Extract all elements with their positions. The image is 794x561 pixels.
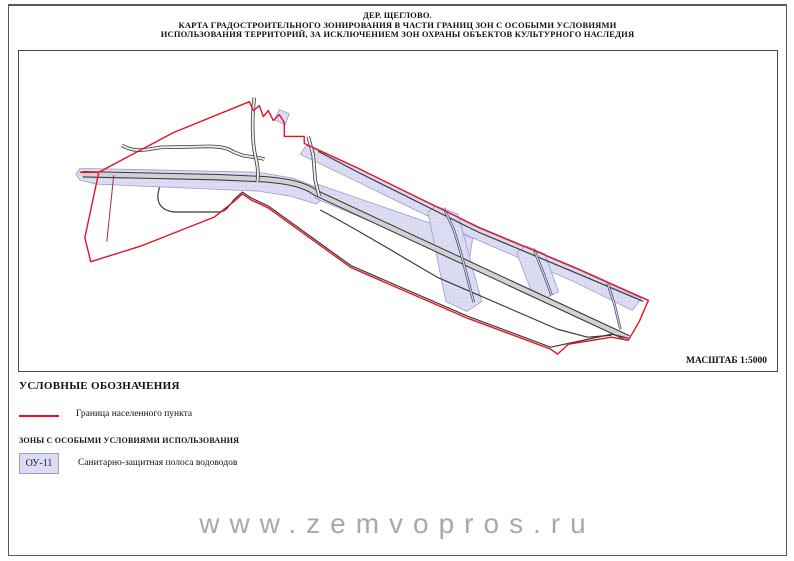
zone-code-swatch: ОУ-11 [19,453,59,474]
legend: УСЛОВНЫЕ ОБОЗНАЧЕНИЯ Граница населенного… [19,372,779,477]
boundary-line-swatch [19,415,59,417]
boundary-item-label: Граница населенного пункта [76,409,192,419]
zone-item-label: Санитарно-защитная полоса водоводов [78,458,237,468]
zoning-map [19,51,777,371]
map-scale-label: МАСШТАБ 1:5000 [686,356,767,366]
legend-item-zone-ou11: ОУ-11 Санитарно-защитная полоса водоводо… [19,453,779,477]
settlement-boundary-inner-line [107,175,114,242]
map-title-block: ДЕР. ЩЕГЛОВО. КАРТА ГРАДОСТРОИТЕЛЬНОГО З… [9,11,786,40]
map-frame: МАСШТАБ 1:5000 [18,50,778,372]
legend-item-boundary: Граница населенного пункта [19,406,779,426]
settlement-boundary-line [80,102,649,354]
legend-zones-header: ЗОНЫ С ОСОБЫМИ УСЛОВИЯМИ ИСПОЛЬЗОВАНИЯ [19,436,779,445]
watermark-url: www.zemvopros.ru [9,508,786,540]
legend-title: УСЛОВНЫЕ ОБОЗНАЧЕНИЯ [19,380,779,392]
title-line-3: ИСПОЛЬЗОВАНИЯ ТЕРРИТОРИЙ, ЗА ИСКЛЮЧЕНИЕМ… [9,30,786,40]
zone-code: ОУ-11 [26,458,53,469]
document-page: ДЕР. ЩЕГЛОВО. КАРТА ГРАДОСТРОИТЕЛЬНОГО З… [8,4,787,556]
